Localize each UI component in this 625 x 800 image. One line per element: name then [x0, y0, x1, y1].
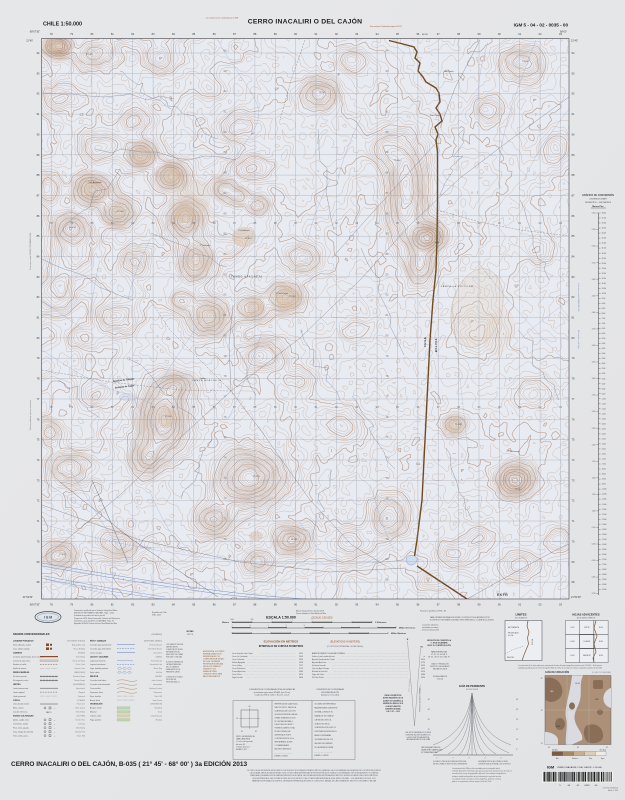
- svg-text:1.250: 1.250: [592, 494, 596, 496]
- svg-text:-9.500: -9.500: [602, 479, 606, 481]
- svg-text:1.500: 1.500: [592, 477, 596, 479]
- svg-text:Cerro Lailay: Cerro Lailay: [232, 665, 242, 667]
- svg-text:8.500: 8.500: [602, 308, 606, 310]
- svg-text:Hito Puelia: Hito Puelia: [444, 70, 455, 73]
- svg-text:1000: 1000: [230, 619, 234, 621]
- svg-text:Límite provincial: Límite provincial: [13, 695, 26, 698]
- svg-text:4.500: 4.500: [592, 279, 596, 281]
- svg-text:Cerro Chico: Cerro Chico: [232, 674, 242, 676]
- svg-text:Río San Pedro: Río San Pedro: [312, 677, 324, 679]
- svg-text:5.500: 5.500: [592, 213, 596, 215]
- svg-text:-15.000: -15.000: [602, 544, 607, 546]
- svg-text:GM: GM: [420, 647, 424, 649]
- svg-text:23°: 23°: [541, 743, 544, 745]
- svg-text:-17.500: -17.500: [602, 559, 607, 561]
- svg-text:21°45': 21°45': [26, 40, 33, 43]
- svg-text:Iglesia, capilla, ruina: Iglesia, capilla, ruina: [13, 719, 29, 722]
- svg-text:B-016: B-016: [599, 627, 603, 629]
- svg-text:0035: 0035: [585, 785, 591, 787]
- svg-text:85: 85: [255, 731, 257, 733]
- svg-text:5105: 5105: [168, 416, 172, 418]
- svg-text:CERRO INACALIRI O DEL CAJÓN, B: CERRO INACALIRI O DEL CAJÓN, B-035 ( 21°…: [11, 759, 247, 768]
- svg-text:0.750: 0.750: [592, 527, 596, 529]
- svg-text:HUSO 19, CUADRÍCULA UTM: HUSO 19, CUADRÍCULA UTM: [427, 644, 451, 647]
- svg-text:SLOPE GUIDE: SLOPE GUIDE: [466, 689, 479, 691]
- svg-text:G-M: 1°22' — 2013: G-M: 1°22' — 2013: [386, 711, 400, 713]
- svg-text:4.500: 4.500: [602, 348, 606, 350]
- svg-text:6.000: 6.000: [602, 333, 606, 335]
- svg-text:2.750: 2.750: [592, 395, 596, 397]
- svg-text:Bofedal de Inacaliri: Bofedal de Inacaliri: [312, 671, 328, 673]
- svg-text:5217: 5217: [299, 665, 303, 667]
- svg-text:Cementerio, tambo: Cementerio, tambo: [13, 722, 28, 725]
- svg-text:30°: 30°: [516, 709, 519, 711]
- svg-text:ELEVACIÓN EN METROS: ELEVACIÓN EN METROS: [264, 639, 299, 644]
- svg-text:17.000: 17.000: [602, 223, 607, 225]
- svg-text:B-036: B-036: [599, 641, 603, 643]
- svg-text:Edición preliminar sujeta a co: Edición preliminar sujeta a corrección: [29, 400, 32, 430]
- svg-text:-10.000: -10.000: [602, 494, 607, 496]
- svg-text:1 Kilómetro: 1 Kilómetro: [375, 621, 387, 624]
- svg-text:NOTAS: NOTAS: [187, 630, 195, 633]
- svg-text:-3.000: -3.000: [602, 423, 606, 425]
- svg-text:Depresión, talud: Depresión, talud: [90, 691, 103, 694]
- svg-text:LÍMITES: LÍMITES: [13, 683, 21, 686]
- svg-text:Continúa en carta OLLAGÜE B-03: Continúa en carta OLLAGÜE B-036: [577, 283, 580, 311]
- svg-text:RELIEVE: RELIEVE: [90, 676, 99, 678]
- svg-text:(LOCATION DIAGRAM): (LOCATION DIAGRAM): [592, 671, 612, 674]
- svg-text:Vega del Cajón: Vega del Cajón: [312, 674, 324, 676]
- svg-text:-8.500: -8.500: [602, 469, 606, 471]
- svg-text:14.000: 14.000: [602, 253, 607, 255]
- svg-text:Camino de ripio, tierra: Camino de ripio, tierra: [13, 659, 30, 662]
- svg-text:4535: 4535: [421, 668, 425, 670]
- svg-text:68°00': 68°00': [560, 31, 567, 34]
- svg-text:Casa, edificio aislado: Casa, edificio aislado: [13, 648, 30, 650]
- svg-text:Vol. Apagado: Vol. Apagado: [89, 181, 103, 184]
- svg-text:Río Inacaliri o del Cajón: Río Inacaliri o del Cajón: [577, 330, 579, 349]
- svg-text:B-034: B-034: [570, 641, 574, 643]
- svg-text:-17.000: -17.000: [602, 564, 607, 566]
- svg-text:Cultivos, viñas: Cultivos, viñas: [90, 715, 101, 718]
- svg-text:5672: 5672: [248, 238, 252, 240]
- svg-text:Vertiente Inacaliri: Vertiente Inacaliri: [312, 664, 326, 667]
- svg-text:BOLIVIANOS: BOLIVIANOS: [515, 617, 528, 620]
- svg-text:5694: 5694: [550, 691, 554, 693]
- svg-text:Cº del Cajón: Cº del Cajón: [276, 292, 289, 295]
- svg-text:4610: 4610: [421, 659, 425, 661]
- svg-text:5.000: 5.000: [602, 343, 606, 345]
- svg-text:-1.000: -1.000: [602, 403, 606, 405]
- svg-text:Prohibida la reproducción tota: Prohibida la reproducción total o parcia…: [74, 614, 105, 617]
- svg-text:LAGOS Y LAGUNAS: LAGOS Y LAGUNAS: [90, 655, 109, 658]
- svg-text:Metros Pies: Metros Pies: [592, 205, 604, 208]
- svg-text:(SCALE 1:50.000): (SCALE 1:50.000): [311, 616, 332, 620]
- svg-text:Posiciones geodésicas WGS - 84: Posiciones geodésicas WGS - 84: [420, 611, 446, 613]
- svg-text:Geocéntrico para las Américas: Geocéntrico para las Américas (SIRGAS). …: [74, 619, 115, 622]
- svg-text:5: 5: [501, 758, 502, 760]
- svg-text:CHILE: CHILE: [423, 337, 427, 347]
- svg-text:3.000: 3.000: [602, 363, 606, 365]
- svg-text:Límite internacional: Límite internacional: [13, 687, 29, 690]
- svg-text:3.250: 3.250: [592, 362, 596, 364]
- svg-text:Vía angosta, trocha: Vía angosta, trocha: [13, 679, 28, 682]
- svg-text:Sobre el nivel medio del mar: Sobre el nivel medio del mar: [312, 656, 335, 658]
- svg-text:68°07'30": 68°07'30": [30, 31, 40, 34]
- svg-text:-7.000: -7.000: [602, 464, 606, 466]
- svg-text:B-015: B-015: [570, 627, 574, 629]
- svg-text:Continúa en carta CERRO COLORA: Continúa en carta CERRO COLORADO B-034: [29, 233, 32, 270]
- svg-text:Paved Road: Paved Road: [76, 656, 85, 658]
- svg-text:Vega, pastizal: Vega, pastizal: [90, 719, 102, 722]
- svg-text:-8.000: -8.000: [602, 474, 606, 476]
- svg-text:5416: 5416: [299, 656, 303, 658]
- svg-text:5309: 5309: [299, 662, 303, 664]
- svg-text:-1.750: -1.750: [591, 593, 595, 595]
- svg-text:2.250: 2.250: [592, 428, 596, 430]
- svg-text:Sendero o huella: Sendero o huella: [13, 663, 26, 666]
- svg-text:BOLIVIA: BOLIVIA: [434, 338, 438, 352]
- svg-text:TAMBO APACHETA: TAMBO APACHETA: [231, 276, 263, 279]
- svg-text:Volcán Apagado: Volcán Apagado: [232, 661, 245, 664]
- svg-text:(ELEVATIONS IN METERS): (ELEVATIONS IN METERS): [330, 641, 360, 644]
- svg-text:CONVERSIÓN DE COORDENADAS: CONVERSIÓN DE COORDENADAS: [316, 688, 345, 691]
- svg-text:-6.000: -6.000: [602, 454, 606, 456]
- svg-text:5233: 5233: [256, 476, 260, 478]
- svg-text:____________________: ____________________: [274, 753, 292, 754]
- svg-text:-10.500: -10.500: [602, 489, 607, 491]
- svg-text:3: 3: [469, 758, 470, 760]
- svg-text:4720: 4720: [421, 662, 425, 664]
- svg-text:5531: 5531: [89, 54, 93, 56]
- svg-text:11.000: 11.000: [602, 283, 606, 285]
- svg-text:4870: 4870: [62, 554, 66, 556]
- svg-text:45°: 45°: [516, 699, 519, 701]
- svg-text:EJEMPLO: 847: EJEMPLO: 847: [236, 749, 247, 751]
- svg-text:Línea de alta tensión: Línea de alta tensión: [13, 703, 29, 706]
- svg-text:3.500: 3.500: [592, 345, 596, 347]
- svg-text:500: 500: [251, 619, 254, 621]
- svg-text:Aguada Apacheta: Aguada Apacheta: [312, 661, 326, 664]
- svg-text:-1.500: -1.500: [602, 398, 606, 400]
- svg-text:-6.500: -6.500: [602, 449, 606, 451]
- svg-text:EJEMPLO: 847832: EJEMPLO: 847832: [275, 755, 288, 757]
- svg-text:Curva auxiliar: Curva auxiliar: [90, 687, 101, 690]
- svg-text:PAMPA APACHETA: PAMPA APACHETA: [192, 379, 221, 382]
- svg-text:CONVERSION GRAPH: CONVERSION GRAPH: [589, 198, 608, 201]
- svg-text:IGM: IGM: [547, 766, 554, 770]
- svg-text:Laguna permanente: Laguna permanente: [90, 659, 106, 662]
- svg-text:Preparado y publicado por el I: Preparado y publicado por el Instituto G…: [74, 609, 118, 612]
- svg-text:(OTHERS): (OTHERS): [77, 700, 85, 702]
- svg-text:Curso de agua permanente: Curso de agua permanente: [90, 643, 111, 646]
- svg-text:Más Bajo: Más Bajo: [600, 750, 606, 752]
- svg-text:-19.000: -19.000: [602, 584, 607, 586]
- svg-text:13.000: 13.000: [602, 263, 607, 265]
- svg-text:Woodland: Woodland: [155, 708, 162, 710]
- svg-text:15°: 15°: [428, 729, 431, 731]
- svg-text:GRÁFICO DE CONVERSIÓN: GRÁFICO DE CONVERSIÓN: [582, 194, 614, 197]
- svg-text:-16.000: -16.000: [602, 554, 607, 556]
- svg-text:10°: 10°: [516, 739, 519, 741]
- svg-text:8.000: 8.000: [602, 313, 606, 315]
- svg-text:1.500: 1.500: [602, 378, 606, 380]
- svg-text:5044: 5044: [525, 61, 529, 63]
- svg-text:-9.000: -9.000: [602, 484, 606, 486]
- svg-text:Salar, salina: Salar, salina: [90, 671, 100, 674]
- svg-text:5119: 5119: [299, 668, 303, 670]
- svg-text:INSTITUTO GEOGRÁFICO MILITAR -: INSTITUTO GEOGRÁFICO MILITAR - Stgo. - C…: [74, 612, 114, 615]
- svg-text:14.500: 14.500: [602, 248, 607, 250]
- svg-text:11.500: 11.500: [602, 278, 606, 280]
- svg-text:BM ⊓: BM ⊓: [46, 711, 52, 714]
- svg-text:(CULTURE): (CULTURE): [76, 716, 85, 718]
- svg-text:ESCALA 1:50.000: ESCALA 1:50.000: [266, 616, 296, 620]
- svg-text:Mina, cantera: Mina, cantera: [13, 707, 24, 710]
- svg-text:Canal, acequia: Canal, acequia: [90, 652, 102, 654]
- svg-text:GEOGRÁFICAS A UTM: GEOGRÁFICAS A UTM: [321, 691, 340, 694]
- svg-text:1.000: 1.000: [592, 511, 596, 513]
- svg-text:22°: 22°: [541, 710, 544, 712]
- svg-text:CERRO INACALIRI O DEL CAJÓN: CERRO INACALIRI O DEL CAJÓN: [248, 17, 362, 26]
- svg-text:-12.500: -12.500: [602, 509, 607, 511]
- svg-text:INTERVALO DE CURVAS 50 METROS: INTERVALO DE CURVAS 50 METROS: [259, 645, 304, 648]
- svg-text:Meadow: Meadow: [156, 720, 163, 722]
- svg-text:Cód. Prod. IGM-0035-00: Cód. Prod. IGM-0035-00: [603, 788, 618, 790]
- svg-text:Cº Salviaverti: Cº Salviaverti: [506, 450, 520, 453]
- svg-text:3.750: 3.750: [592, 329, 596, 331]
- svg-text:Vía férrea normal: Vía férrea normal: [13, 675, 27, 678]
- svg-text:4.750: 4.750: [592, 262, 596, 264]
- svg-text:GUÍA DE UBICACIÓN: GUÍA DE UBICACIÓN: [545, 671, 569, 674]
- svg-text:Sand, Dunes: Sand, Dunes: [153, 700, 163, 702]
- svg-text:5119: 5119: [518, 489, 522, 491]
- svg-text:30°: 30°: [428, 709, 431, 711]
- svg-text:5060: 5060: [294, 539, 298, 541]
- svg-text:Curva de nivel índice: Curva de nivel índice: [90, 679, 106, 682]
- svg-text:4870: 4870: [299, 674, 303, 676]
- svg-text:69°: 69°: [548, 747, 551, 749]
- svg-text:21°45': 21°45': [571, 40, 578, 43]
- svg-text:-13.000: -13.000: [602, 524, 607, 526]
- svg-text:EKFR: EKFR: [497, 593, 508, 597]
- svg-text:-15.500: -15.500: [602, 539, 607, 541]
- svg-text:-20.500: -20.500: [602, 589, 607, 591]
- svg-text:3.500: 3.500: [602, 358, 606, 360]
- svg-text:(ejemplo en el recuadro): (ejemplo en el recuadro): [321, 694, 340, 697]
- svg-text:Roca, farellón: Roca, farellón: [90, 695, 101, 698]
- svg-text:Casa, refugio de montaña: Casa, refugio de montaña: [13, 730, 33, 733]
- svg-text:UBICACIÓN DE CUADRÍCULA: UBICACIÓN DE CUADRÍCULA: [427, 639, 452, 642]
- svg-text:5.000: 5.000: [592, 246, 596, 248]
- svg-text:Regional: Regional: [79, 692, 86, 694]
- svg-text:-12.000: -12.000: [602, 514, 607, 516]
- svg-text:PAMPA LA PÓLVORA: PAMPA LA PÓLVORA: [441, 285, 474, 288]
- svg-text:PROYECCIÓN UTM — SIRGAS: PROYECCIÓN UTM — SIRGAS: [419, 687, 422, 712]
- svg-text:★: ★: [406, 638, 408, 641]
- svg-text:0.250: 0.250: [592, 560, 596, 562]
- svg-text:B-056: B-056: [599, 655, 603, 657]
- svg-text:-4.000: -4.000: [602, 434, 606, 436]
- svg-text:B-054: B-054: [570, 655, 574, 657]
- svg-text:5590: 5590: [292, 296, 296, 298]
- svg-text:12.500: 12.500: [602, 268, 607, 270]
- svg-text:-5.500: -5.500: [602, 439, 606, 441]
- svg-text:17.500: 17.500: [602, 218, 607, 220]
- svg-text:0.000: 0.000: [602, 393, 606, 395]
- svg-text:ADJOINING SHEETS: ADJOINING SHEETS: [577, 617, 596, 620]
- svg-text:0.500: 0.500: [592, 544, 596, 546]
- svg-text:5321: 5321: [322, 92, 326, 94]
- svg-text:LINZOR: LINZOR: [584, 627, 590, 629]
- svg-text:7.500: 7.500: [602, 318, 606, 320]
- svg-text:15.500: 15.500: [602, 238, 607, 240]
- svg-text:4980: 4980: [299, 671, 303, 673]
- svg-text:5977-S: 5977-S: [187, 634, 194, 636]
- svg-text:(actualizada según datum SIRGA: (actualizada según datum SIRGAS, huso 19…: [254, 691, 291, 694]
- svg-text:4: 4: [485, 758, 486, 760]
- svg-text:CONVERSIÓN DE COORDENADAS UTM: CONVERSIÓN DE COORDENADAS UTM A GEOGRÁFI…: [249, 688, 296, 691]
- svg-text:-2.000: -2.000: [602, 413, 606, 415]
- svg-text:5672: 5672: [299, 653, 303, 655]
- svg-text:4604: 4604: [397, 160, 401, 162]
- svg-text:____________________: ____________________: [314, 752, 332, 753]
- svg-text:-13.500: -13.500: [602, 519, 607, 521]
- svg-text:SIGNOS CULTURALES: SIGNOS CULTURALES: [13, 715, 34, 718]
- svg-text:Rock, Cliff: Rock, Cliff: [155, 696, 163, 698]
- svg-text:Aguada Quebrada del Cajón: Aguada Quebrada del Cajón: [312, 658, 335, 661]
- svg-text:Cerro Colorado: Cerro Colorado: [232, 659, 244, 661]
- svg-text:Curso de agua intermitente: Curso de agua intermitente: [90, 647, 111, 650]
- svg-text:Límite regional: Límite regional: [13, 691, 25, 694]
- svg-text:Zona edificada, ciudad: Zona edificada, ciudad: [13, 644, 31, 646]
- svg-text:Pozo, noria, aguada: Pozo, noria, aguada: [13, 726, 29, 729]
- svg-text:Edición 3 - 2013: Edición 3 - 2013: [608, 790, 618, 792]
- svg-text:(CONTOUR INTERVAL 50 METERS): (CONTOUR INTERVAL 50 METERS): [327, 645, 364, 648]
- svg-text:Bosque, monte: Bosque, monte: [90, 707, 102, 710]
- svg-text:Millas Náuticas: Millas Náuticas: [391, 632, 407, 635]
- svg-text:La Poderosa: La Poderosa: [239, 229, 251, 232]
- svg-text:(RELIEF): (RELIEF): [155, 676, 162, 678]
- svg-text:1: 1: [437, 758, 438, 760]
- svg-text:9.500: 9.500: [602, 298, 606, 300]
- svg-text:Pampa Apacheta: Pampa Apacheta: [232, 670, 246, 673]
- svg-text:2.000: 2.000: [602, 373, 606, 375]
- svg-text:Mediano: Mediano: [572, 758, 578, 760]
- svg-text:-5.000: -5.000: [602, 444, 606, 446]
- svg-text:13.500: 13.500: [602, 258, 607, 260]
- svg-text:EJEMPLO: 5478350: EJEMPLO: 5478350: [315, 755, 329, 757]
- svg-text:VIGENTES Y SUS: VIGENTES Y SUS: [203, 669, 216, 671]
- svg-text:20°: 20°: [516, 719, 519, 721]
- svg-text:Datum altimétrico: Nivel Medio: Datum altimétrico: Nivel Medio del Mar: [296, 612, 326, 615]
- svg-text:IGM 5 - 04 - 02 - 0035 - 00: IGM 5 - 04 - 02 - 0035 - 00: [514, 23, 569, 28]
- svg-text:Proyección UTM. Datum horizont: Proyección UTM. Datum horizontal: Sistem…: [74, 617, 120, 620]
- svg-text:B-035: B-035: [556, 726, 560, 728]
- svg-text:(LEGEND): (LEGEND): [152, 634, 163, 636]
- svg-text:Millas Terrestres: Millas Terrestres: [399, 627, 416, 630]
- svg-text:Vega Inacaliri: Vega Inacaliri: [232, 677, 243, 679]
- svg-text:Laguna intermitente: Laguna intermitente: [90, 663, 105, 666]
- svg-text:15.000: 15.000: [602, 243, 607, 245]
- svg-text:-11.500: -11.500: [602, 499, 607, 501]
- svg-text:Torre, antena, pirca: Torre, antena, pirca: [13, 734, 28, 737]
- svg-text:2: 2: [453, 758, 454, 760]
- svg-text:OTROS: OTROS: [13, 700, 20, 702]
- svg-text:2.500: 2.500: [602, 368, 606, 370]
- svg-text:IGM - 2013: IGM - 2013: [152, 615, 161, 617]
- svg-text:Cº Inacaliri: Cº Inacaliri: [200, 244, 211, 247]
- svg-text:18.000: 18.000: [602, 213, 607, 215]
- svg-text:Para caminos Clasificados segú: Para caminos Clasificados según el M.O.P…: [370, 25, 403, 28]
- svg-text:5916: 5916: [595, 699, 599, 701]
- svg-text:21°: 21°: [541, 678, 544, 680]
- svg-text:Cuadrícula UTM de 1.000 m, Hus: Cuadrícula UTM de 1.000 m, Huso 19, zona…: [255, 694, 290, 697]
- svg-text:CERRO INACALIRI O DEL CAJÓN -: CERRO INACALIRI O DEL CAJÓN - 1:50.000: [557, 766, 603, 769]
- svg-text:4988: 4988: [458, 424, 462, 426]
- svg-text:5330: 5330: [299, 659, 303, 661]
- svg-text:HOJAS ADYACENTES: HOJAS ADYACENTES: [572, 613, 599, 617]
- svg-text:5.250: 5.250: [592, 229, 596, 231]
- svg-text:6.500: 6.500: [602, 328, 606, 330]
- svg-text:Vega, bofedal, pantano: Vega, bofedal, pantano: [90, 667, 108, 670]
- svg-text:4.000: 4.000: [592, 312, 596, 314]
- svg-text:Curva de nivel intermedia: Curva de nivel intermedia: [90, 683, 110, 686]
- svg-text:10.500: 10.500: [602, 288, 607, 290]
- svg-text:SIGNOS CONVENCIONALES: SIGNOS CONVENCIONALES: [13, 632, 50, 636]
- svg-text:Cerro Inacaliri o del Cajón: Cerro Inacaliri o del Cajón: [232, 653, 253, 655]
- svg-text:9.000: 9.000: [602, 303, 606, 305]
- svg-text:-18.000: -18.000: [602, 574, 607, 576]
- svg-text:15°: 15°: [516, 729, 519, 731]
- svg-text:5178: 5178: [72, 227, 76, 229]
- svg-text:84: 84: [249, 706, 251, 708]
- svg-text:68°: 68°: [577, 747, 580, 749]
- svg-text:21°52'30": 21°52'30": [571, 596, 581, 599]
- svg-text:4480: 4480: [421, 674, 425, 676]
- svg-text:5306: 5306: [120, 211, 124, 213]
- svg-text:1:50.000: 1:50.000: [437, 679, 443, 681]
- svg-text:1.750: 1.750: [592, 461, 596, 463]
- svg-text:Cerro La Quebrada: Cerro La Quebrada: [232, 656, 247, 658]
- svg-text:45°: 45°: [428, 699, 431, 701]
- svg-text:2.500: 2.500: [592, 411, 596, 413]
- svg-text:Metros: Metros: [222, 621, 230, 624]
- svg-text:-14.500: -14.500: [602, 529, 607, 531]
- svg-text:10.000: 10.000: [602, 293, 607, 295]
- svg-text:5.500: 5.500: [602, 338, 606, 340]
- svg-text:10°: 10°: [428, 739, 431, 741]
- svg-text:21°52'30": 21°52'30": [23, 596, 33, 599]
- svg-text:16.500: 16.500: [602, 228, 607, 230]
- svg-text:CHILE 1:50.000: CHILE 1:50.000: [43, 22, 82, 28]
- svg-text:Matorral: Matorral: [90, 711, 97, 714]
- svg-text:4.250: 4.250: [592, 295, 596, 297]
- svg-text:0.500: 0.500: [602, 388, 606, 390]
- svg-text:4390: 4390: [421, 677, 425, 679]
- svg-text:-3.500: -3.500: [602, 418, 606, 420]
- svg-text:LUGARES POBLADOS: LUGARES POBLADOS: [13, 640, 34, 643]
- svg-text:67°: 67°: [606, 747, 609, 749]
- svg-text:68° 00' - 68° 07' 30" LONG. W: 68° 00' - 68° 07' 30" LONG. W: [428, 657, 450, 659]
- svg-text:4510: 4510: [421, 671, 425, 673]
- svg-text:House, Building: House, Building: [74, 648, 86, 650]
- svg-text:Huella de verano: Huella de verano: [13, 667, 26, 670]
- svg-text:4590: 4590: [421, 665, 425, 667]
- svg-text:Cerro Salviaverti: Cerro Salviaverti: [232, 667, 246, 670]
- svg-text:68°05': 68°05': [422, 34, 429, 36]
- svg-text:-19.500: -19.500: [602, 579, 607, 581]
